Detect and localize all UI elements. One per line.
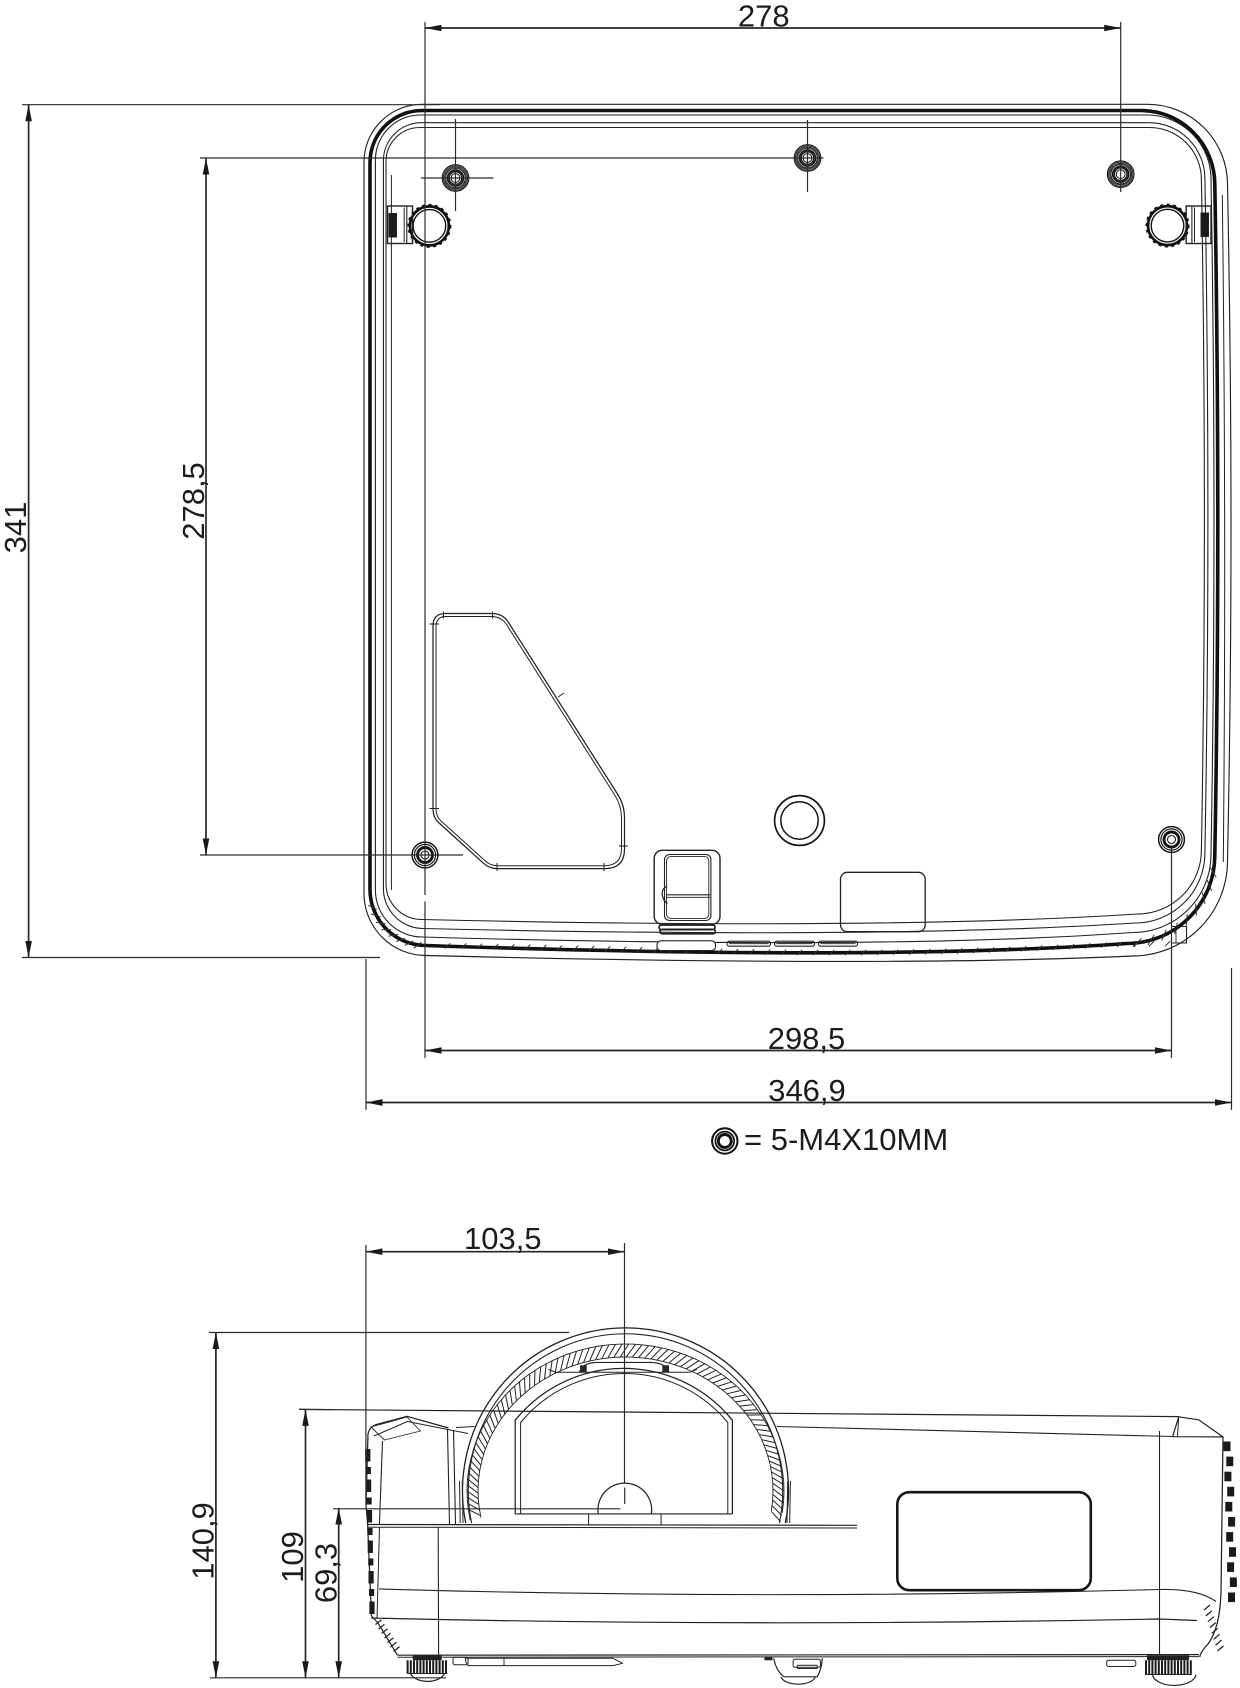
svg-text:69,3: 69,3 <box>309 1543 344 1603</box>
svg-text:140,9: 140,9 <box>186 1502 221 1580</box>
svg-text:278: 278 <box>738 0 790 34</box>
svg-text:278,5: 278,5 <box>176 462 211 540</box>
svg-text:346,9: 346,9 <box>768 1073 846 1108</box>
svg-text:109: 109 <box>275 1531 310 1583</box>
svg-text:= 5-M4X10MM: = 5-M4X10MM <box>744 1122 948 1157</box>
svg-text:298,5: 298,5 <box>768 1021 846 1056</box>
svg-text:103,5: 103,5 <box>464 1221 542 1256</box>
svg-text:341: 341 <box>0 502 33 554</box>
